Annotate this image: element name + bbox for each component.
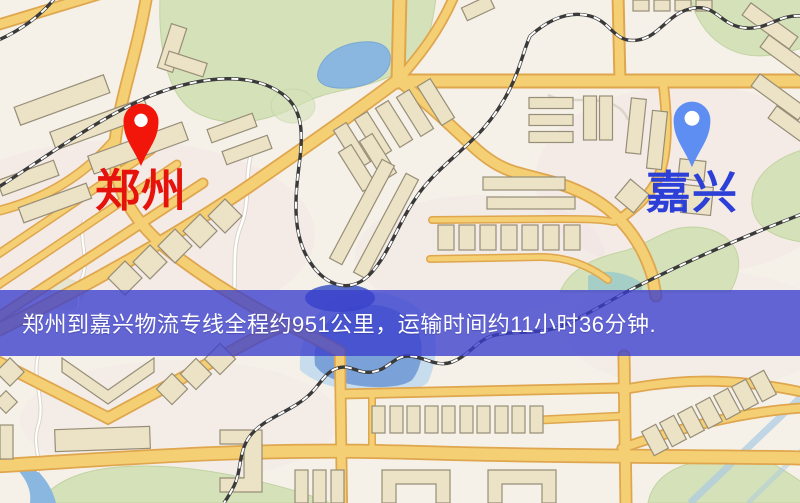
map-canvas: 郑州 嘉兴 郑州到嘉兴物流专线全程约951公里，运输时间约11小时36分钟.: [0, 0, 800, 503]
destination-city-label: 嘉兴: [632, 169, 752, 216]
blue-location-pin-icon[interactable]: [671, 99, 713, 169]
origin-city-label: 郑州: [81, 168, 201, 215]
destination-marker[interactable]: 嘉兴: [632, 99, 752, 216]
red-location-pin-icon[interactable]: [121, 101, 161, 168]
route-summary-text: 郑州到嘉兴物流专线全程约951公里，运输时间约11小时36分钟.: [0, 307, 656, 339]
map-image: [0, 0, 800, 503]
origin-marker[interactable]: 郑州: [81, 101, 201, 215]
info-banner: 郑州到嘉兴物流专线全程约951公里，运输时间约11小时36分钟.: [0, 290, 800, 356]
